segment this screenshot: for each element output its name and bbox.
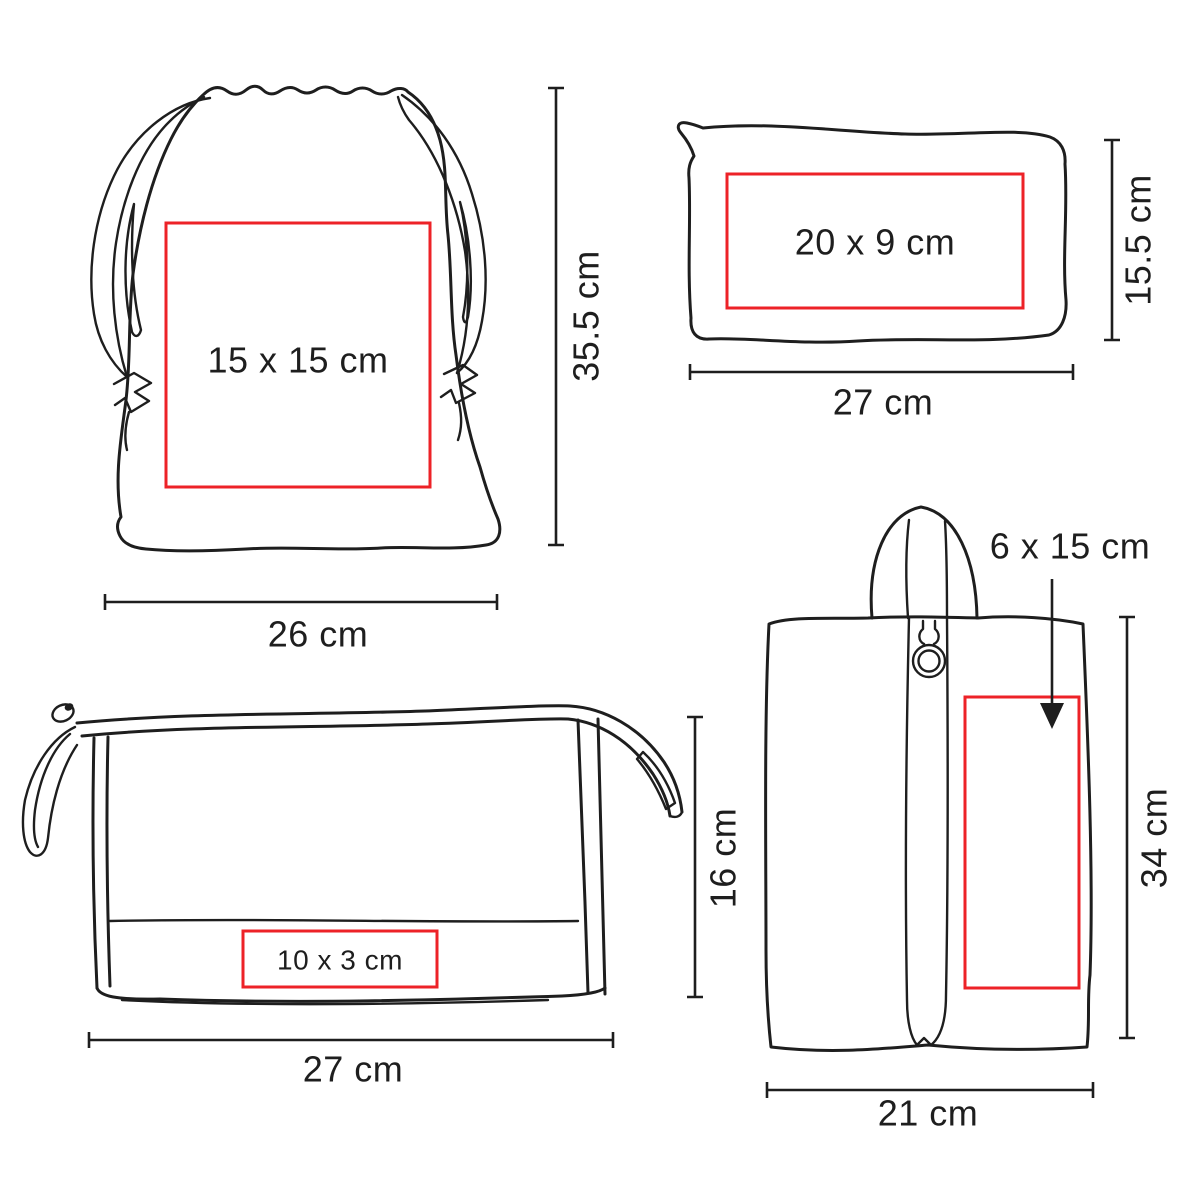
shoe-bag-height-label: 34 cm: [1134, 788, 1175, 889]
drawstring-width-dimension: 26 cm: [105, 594, 497, 655]
zippered-pouch-height-label: 15.5 cm: [1118, 174, 1159, 306]
shoe-bag-height-dimension: 34 cm: [1119, 617, 1175, 1038]
drawstring-bag-outline: [117, 86, 499, 551]
shoe-bag-zipper-ring-inner: [919, 651, 940, 672]
shoe-bag-print-area-label: 6 x 15 cm: [990, 526, 1151, 567]
cosmetic-bag-right-band: [578, 719, 605, 994]
cosmetic-bag-height-line: [687, 717, 703, 997]
shoe-bag-width-label: 21 cm: [878, 1093, 979, 1134]
cosmetic-bag-width-label: 27 cm: [303, 1049, 404, 1090]
cosmetic-bag-print-area-label: 10 x 3 cm: [277, 945, 403, 976]
drawstring-height-label: 35.5 cm: [566, 250, 607, 382]
zippered-pouch-width-line: [690, 364, 1073, 380]
shoe-bag-zipper-pull-neck: [919, 621, 938, 644]
zippered-pouch-drawing: 20 x 9 cm 15.5 cm 27 cm: [678, 123, 1158, 423]
shoe-bag-print-area: [965, 697, 1079, 988]
drawstring-right-cord: [402, 95, 486, 373]
drawstring-width-line: [105, 594, 497, 610]
drawstring-height-dimension: 35.5 cm: [548, 88, 607, 545]
cosmetic-bag-bottom-edge: [97, 988, 605, 1001]
zippered-pouch-width-label: 27 cm: [833, 382, 934, 423]
drawstring-width-label: 26 cm: [268, 614, 369, 655]
drawstring-right-cord-return: [398, 97, 468, 373]
cosmetic-bag-width-dimension: 27 cm: [89, 1032, 613, 1090]
zippered-pouch-width-dimension: 27 cm: [690, 364, 1073, 423]
shoe-bag-drawing: 6 x 15 cm 34 cm 21 cm: [766, 507, 1175, 1134]
cosmetic-bag-pull-strap-inner: [34, 734, 70, 847]
product-dimensions-diagram: 15 x 15 cm 35.5 cm 26 cm 20 x 9 cm 15.5 …: [0, 0, 1200, 1200]
cosmetic-bag-height-dimension: 16 cm: [687, 717, 744, 997]
shoe-bag-handle-strap: [906, 520, 947, 618]
cosmetic-bag-divider: [110, 920, 578, 921]
drawstring-right-cord-end: [458, 403, 461, 440]
shoe-bag-outline: [766, 617, 1092, 1051]
drawstring-print-area-label: 15 x 15 cm: [207, 340, 388, 381]
cosmetic-bag-drawing: 10 x 3 cm 16 cm 27 cm: [23, 701, 744, 1089]
cosmetic-bag-height-label: 16 cm: [703, 808, 744, 909]
zippered-pouch-print-area-label: 20 x 9 cm: [795, 222, 956, 263]
cosmetic-bag-zipper-top: [77, 706, 682, 812]
bag-print-areas-diagram: 15 x 15 cm 35.5 cm 26 cm 20 x 9 cm 15.5 …: [0, 0, 1200, 1200]
drawstring-left-cord-inner: [125, 204, 141, 336]
cosmetic-bag-width-line: [89, 1032, 613, 1048]
drawstring-left-cord: [91, 98, 210, 377]
cosmetic-bag-pull-strap: [23, 727, 77, 856]
drawstring-left-cord-end: [125, 412, 129, 450]
cosmetic-bag-zipper-tail: [670, 812, 682, 817]
shoe-bag-handle: [871, 507, 977, 618]
drawstring-height-line: [548, 88, 564, 545]
cosmetic-bag-left-band: [93, 737, 110, 988]
shoe-bag-zipper: [906, 618, 948, 1045]
shoe-bag-width-dimension: 21 cm: [767, 1082, 1093, 1134]
drawstring-bag-drawing: 15 x 15 cm 35.5 cm 26 cm: [91, 86, 606, 654]
shoe-bag-callout-arrowhead: [1040, 703, 1064, 729]
zippered-pouch-height-dimension: 15.5 cm: [1104, 140, 1159, 340]
drawstring-left-knot: [114, 373, 151, 412]
